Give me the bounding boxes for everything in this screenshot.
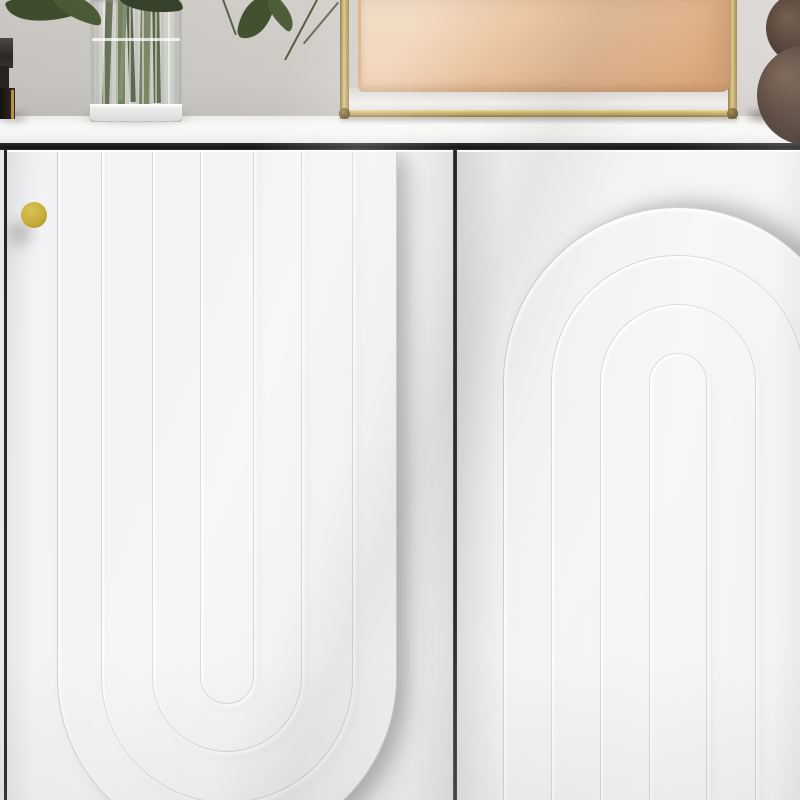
- frame-right-foot: [727, 108, 738, 119]
- leather-panel: [358, 0, 731, 92]
- left-door: [7, 150, 453, 800]
- perfume-bottle-cap: [0, 38, 13, 68]
- vase-waterline: [92, 38, 180, 41]
- perfume-bottle-neck: [0, 66, 9, 90]
- top-gap-shadow-line: [0, 143, 800, 150]
- frame-left-foot: [339, 108, 350, 119]
- vase-base: [90, 104, 182, 121]
- left-door-groove-inner: [200, 150, 254, 704]
- frame-left-post: [340, 0, 349, 119]
- glass-vase: [90, 0, 182, 122]
- cabinet-product-photo: [0, 0, 800, 800]
- right-door: [457, 150, 800, 800]
- brass-knob: [21, 202, 47, 228]
- perfume-bottle-gold-trim: [11, 90, 14, 119]
- right-door-groove-inner: [649, 353, 707, 800]
- frame-bottom-bar: [340, 110, 737, 117]
